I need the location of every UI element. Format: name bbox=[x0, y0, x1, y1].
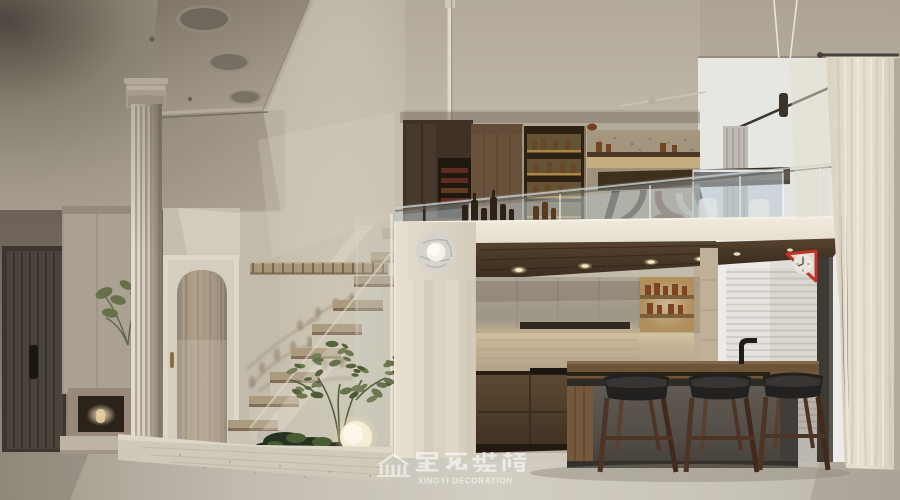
svg-text:XINGYI DECORATION: XINGYI DECORATION bbox=[418, 477, 513, 486]
